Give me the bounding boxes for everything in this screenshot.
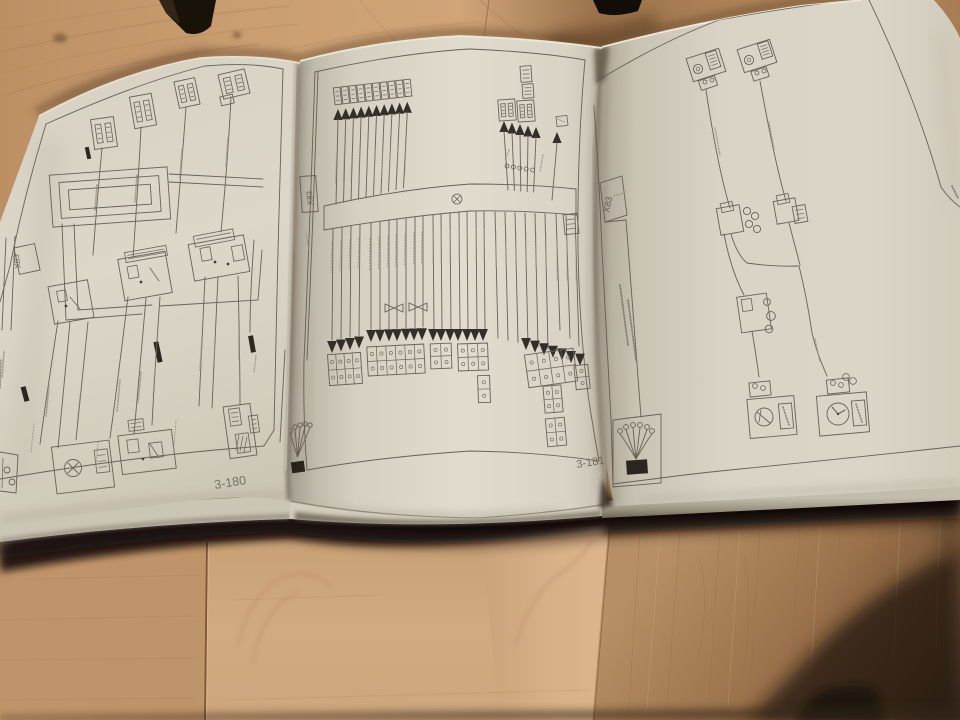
svg-text:X83: X83 (305, 190, 315, 206)
